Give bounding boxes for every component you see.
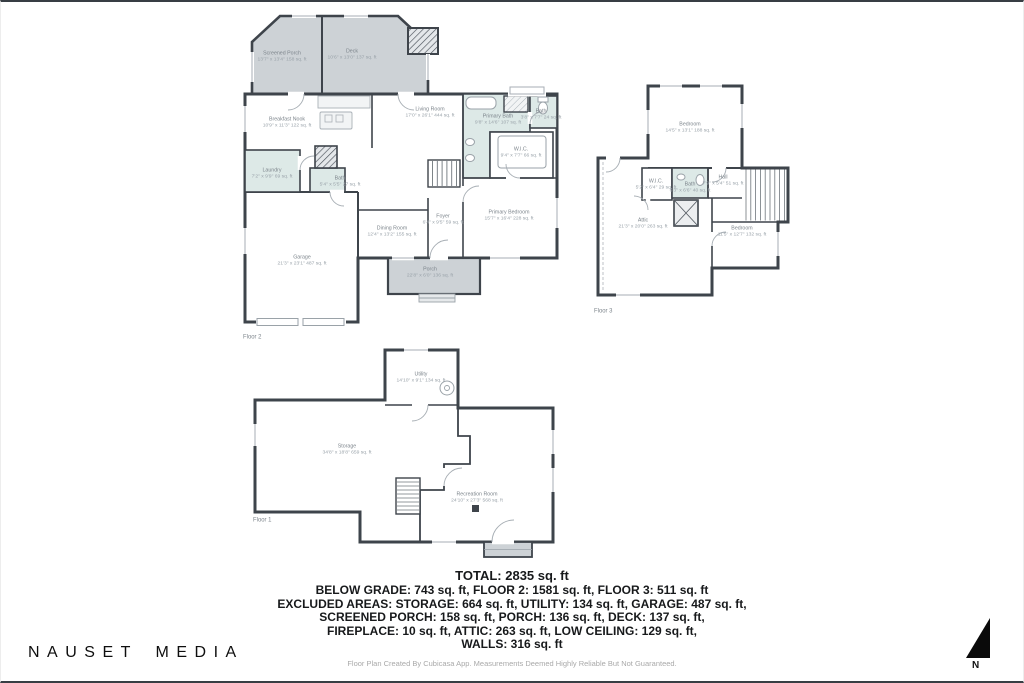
summary-line: EXCLUDED AREAS: STORAGE: 664 sq. ft, UTI… <box>0 598 1024 612</box>
room-dims: 34'8" x 18'8" 659 sq. ft <box>323 449 372 455</box>
room-dims: 11'5" x 12'7" 132 sq. ft <box>718 231 767 237</box>
summary-line: SCREENED PORCH: 158 sq. ft, PORCH: 136 s… <box>0 611 1024 625</box>
room-name: Deck <box>328 47 377 54</box>
kitchen-chimney-hatched <box>315 146 337 168</box>
room-dims: 21'3" x 20'0" 263 sq. ft <box>619 223 668 229</box>
room-dims: 12'4" x 13'2" 155 sq. ft <box>368 231 417 237</box>
room-dims: 7'2" x 9'9" 69 sq. ft <box>252 173 293 179</box>
room-dims: 6'4" x 9'5" 59 sq. ft <box>423 219 464 225</box>
room-name: Utility <box>397 370 446 377</box>
room-name: Garage <box>278 253 327 260</box>
room-label-screened-porch: Screened Porch13'7" x 13'4" 158 sq. ft <box>258 49 307 62</box>
sink <box>466 155 475 162</box>
garage-doors <box>256 319 346 326</box>
room-label-primary-bath: Primary Bath9'8" x 14'6" 107 sq. ft <box>475 112 521 125</box>
room-dims: 5'4" x 5'5" 27 sq. ft <box>320 181 361 187</box>
room-name: Storage <box>323 442 372 449</box>
sink <box>677 174 685 180</box>
stairs-floor1 <box>396 478 420 514</box>
room-name: Breakfast Nook <box>263 115 312 122</box>
room-name: Foyer <box>423 212 464 219</box>
room-label-utility: Utility14'10" x 9'1" 134 sq. ft <box>397 370 446 383</box>
room-dims: 24'10" x 27'3" 568 sq. ft <box>451 497 503 503</box>
room-name: Bath <box>521 107 562 114</box>
room-dims: 10'9" x 11'3" 122 sq. ft <box>263 122 312 128</box>
room-dims: 9'4" x 7'7" 66 sq. ft <box>501 152 542 158</box>
room-name: Porch <box>407 265 453 272</box>
room-label-bedroom-top: Bedroom14'5" x 13'1" 188 sq. ft <box>666 120 715 133</box>
floor2-caption: Floor 2 <box>243 333 261 340</box>
room-name: Laundry <box>252 166 293 173</box>
room-dims: 14'5" x 13'1" 188 sq. ft <box>666 127 715 133</box>
summary-line: FIREPLACE: 10 sq. ft, ATTIC: 263 sq. ft,… <box>0 625 1024 639</box>
room-dims: 7'9" x 5'4" 51 sq. ft <box>703 180 744 186</box>
bathtub <box>466 97 496 109</box>
room-name: Living Room <box>406 105 455 112</box>
room-dims: 3'8" x 7'7" 24 sq. ft <box>521 114 562 120</box>
brand-logo: NAUSET MEDIA <box>28 644 244 662</box>
room-label-living-room: Living Room17'0" x 26'1" 444 sq. ft <box>406 105 455 118</box>
room-name: Bath <box>320 174 361 181</box>
room-label-primary-bedroom: Primary Bedroom15'7" x 16'4" 228 sq. ft <box>485 208 534 221</box>
room-dims: 14'10" x 9'1" 134 sq. ft <box>397 377 446 383</box>
summary-total: TOTAL: 2835 sq. ft <box>0 569 1024 583</box>
window <box>508 87 546 94</box>
support-post <box>472 505 479 512</box>
room-dims: 13'7" x 13'4" 158 sq. ft <box>258 56 307 62</box>
floor3-caption: Floor 3 <box>594 307 612 314</box>
room-dims: 21'3" x 23'1" 487 sq. ft <box>278 260 327 266</box>
room-label-laundry: Laundry7'2" x 9'9" 69 sq. ft <box>252 166 293 179</box>
room-label-porch: Porch22'8" x 6'0" 136 sq. ft <box>407 265 453 278</box>
room-dims: 22'8" x 6'0" 136 sq. ft <box>407 272 453 278</box>
room-name: Screened Porch <box>258 49 307 56</box>
room-label-deck: Deck10'6" x 13'0" 137 sq. ft <box>328 47 377 60</box>
north-label: N <box>972 660 979 671</box>
kitchen-counter <box>318 96 370 108</box>
north-indicator: N <box>960 616 1004 678</box>
room-dims: 6'3" x 6'6" 40 sq. ft <box>670 187 711 193</box>
room-label-recreation-room: Recreation Room24'10" x 27'3" 568 sq. ft <box>451 490 503 503</box>
room-label-garage: Garage21'3" x 23'1" 487 sq. ft <box>278 253 327 266</box>
room-name: Dining Room <box>368 224 417 231</box>
room-label-hall: Hall7'9" x 5'4" 51 sq. ft <box>703 173 744 186</box>
floor1-caption: Floor 1 <box>253 516 271 523</box>
room-dims: 10'6" x 13'0" 137 sq. ft <box>328 54 377 60</box>
room-dims: 9'8" x 14'6" 107 sq. ft <box>475 119 521 125</box>
room-label-bath-small: Bath3'8" x 7'7" 24 sq. ft <box>521 107 562 120</box>
fireplace-chimney-hatched <box>408 28 438 54</box>
summary-block: TOTAL: 2835 sq. ft BELOW GRADE: 743 sq. … <box>0 569 1024 652</box>
room-name: Attic <box>619 216 668 223</box>
room-name: Recreation Room <box>451 490 503 497</box>
room-name: Hall <box>703 173 744 180</box>
summary-line: BELOW GRADE: 743 sq. ft, FLOOR 2: 1581 s… <box>0 584 1024 598</box>
north-arrow-icon <box>960 616 1000 660</box>
room-label-foyer: Foyer6'4" x 9'5" 59 sq. ft <box>423 212 464 225</box>
room-name: W.I.C. <box>501 145 542 152</box>
room-name: Bedroom <box>718 224 767 231</box>
room-label-bedroom-right: Bedroom11'5" x 12'7" 132 sq. ft <box>718 224 767 237</box>
room-label-attic: Attic21'3" x 20'0" 263 sq. ft <box>619 216 668 229</box>
room-name: Primary Bedroom <box>485 208 534 215</box>
room-label-breakfast-nook: Breakfast Nook10'9" x 11'3" 122 sq. ft <box>263 115 312 128</box>
room-label-wic-f2: W.I.C.9'4" x 7'7" 66 sq. ft <box>501 145 542 158</box>
room-dims: 17'0" x 26'1" 444 sq. ft <box>406 112 455 118</box>
room-dims: 15'7" x 16'4" 228 sq. ft <box>485 215 534 221</box>
room-name: Bedroom <box>666 120 715 127</box>
sink <box>466 139 475 146</box>
room-label-storage: Storage34'8" x 18'8" 659 sq. ft <box>323 442 372 455</box>
room-label-bath-f2: Bath5'4" x 5'5" 27 sq. ft <box>320 174 361 187</box>
room-name: Primary Bath <box>475 112 521 119</box>
room-label-dining-room: Dining Room12'4" x 13'2" 155 sq. ft <box>368 224 417 237</box>
